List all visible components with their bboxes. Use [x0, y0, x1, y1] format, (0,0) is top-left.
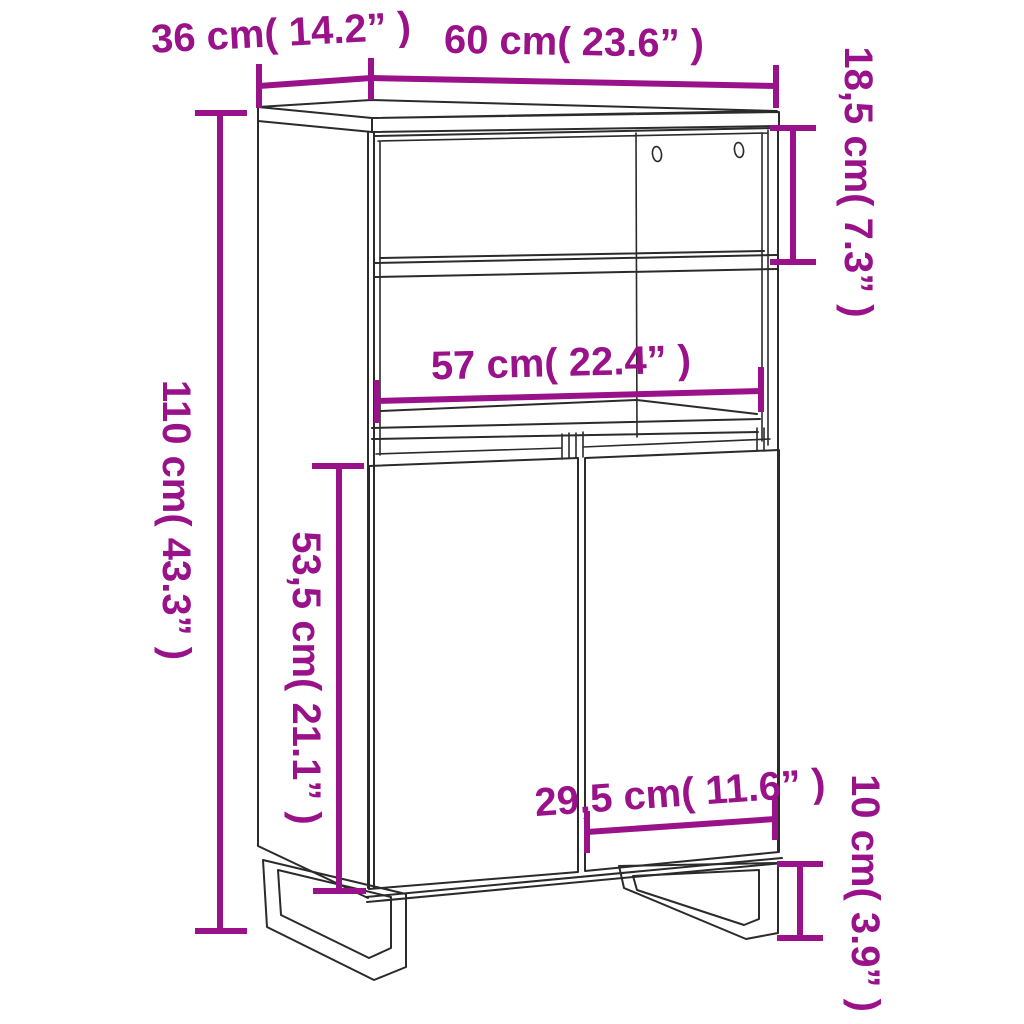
mounting-hole-left	[652, 146, 663, 162]
cabinet-mid-slab	[372, 400, 760, 439]
dimension-label-inner-width: 57 cm( 22.4” )	[430, 338, 691, 389]
dimension-label-total-height: 110 cm( 43.3” )	[154, 380, 198, 660]
diagram-canvas: 36 cm( 14.2” ) 60 cm( 23.6” ) 18,5 cm( 7…	[0, 0, 1024, 1024]
dimension-line-leg-height	[777, 864, 823, 938]
cabinet-shelf	[374, 251, 777, 277]
dimension-label-width: 60 cm( 23.6” )	[444, 18, 705, 67]
dimension-line-total-height	[195, 113, 247, 931]
mounting-hole-right	[734, 142, 745, 158]
dimension-label-leg-height: 10 cm( 3.9” )	[843, 774, 887, 1012]
dimension-label-depth: 36 cm( 14.2” )	[150, 4, 412, 62]
cabinet-interior-lines	[378, 130, 768, 455]
cabinet-leg-right	[619, 863, 778, 939]
cabinet-leg-left	[263, 860, 406, 980]
dimension-line-upper-compartment	[770, 128, 816, 262]
dimension-label-door-section: 53,5 cm( 21.1” )	[284, 531, 328, 825]
furniture-dimension-diagram: 36 cm( 14.2” ) 60 cm( 23.6” ) 18,5 cm( 7…	[0, 0, 1024, 1024]
cabinet-carcass	[374, 126, 778, 851]
cabinet-top-slab	[258, 100, 779, 132]
dimension-annotations: 36 cm( 14.2” ) 60 cm( 23.6” ) 18,5 cm( 7…	[150, 4, 887, 1012]
dimension-label-upper-compartment: 18,5 cm( 7.3” )	[836, 46, 880, 317]
